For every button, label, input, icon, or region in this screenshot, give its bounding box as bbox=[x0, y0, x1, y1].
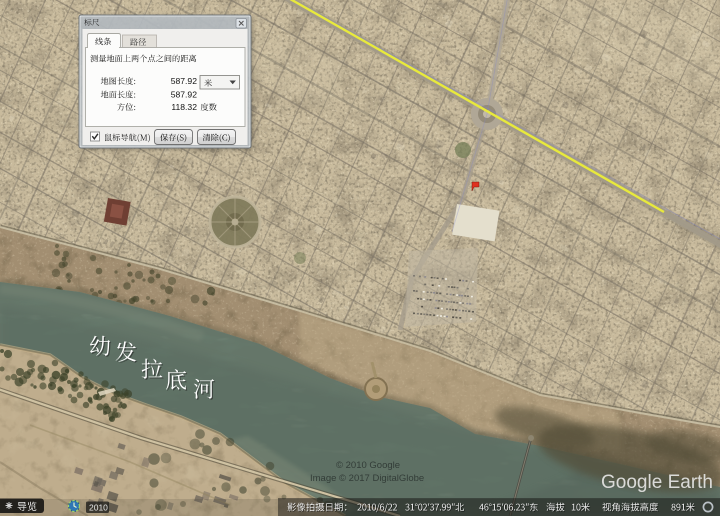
svg-text:118.32: 118.32 bbox=[171, 102, 197, 112]
svg-text:© 2010 Google: © 2010 Google bbox=[336, 460, 400, 471]
svg-text:587.92: 587.92 bbox=[171, 90, 198, 100]
svg-text:Image © 2017 DigitalGlobe: Image © 2017 DigitalGlobe bbox=[310, 473, 424, 484]
svg-text:Google Earth: Google Earth bbox=[601, 471, 713, 493]
svg-text:587.92: 587.92 bbox=[171, 76, 198, 86]
svg-text:2010: 2010 bbox=[89, 503, 108, 513]
